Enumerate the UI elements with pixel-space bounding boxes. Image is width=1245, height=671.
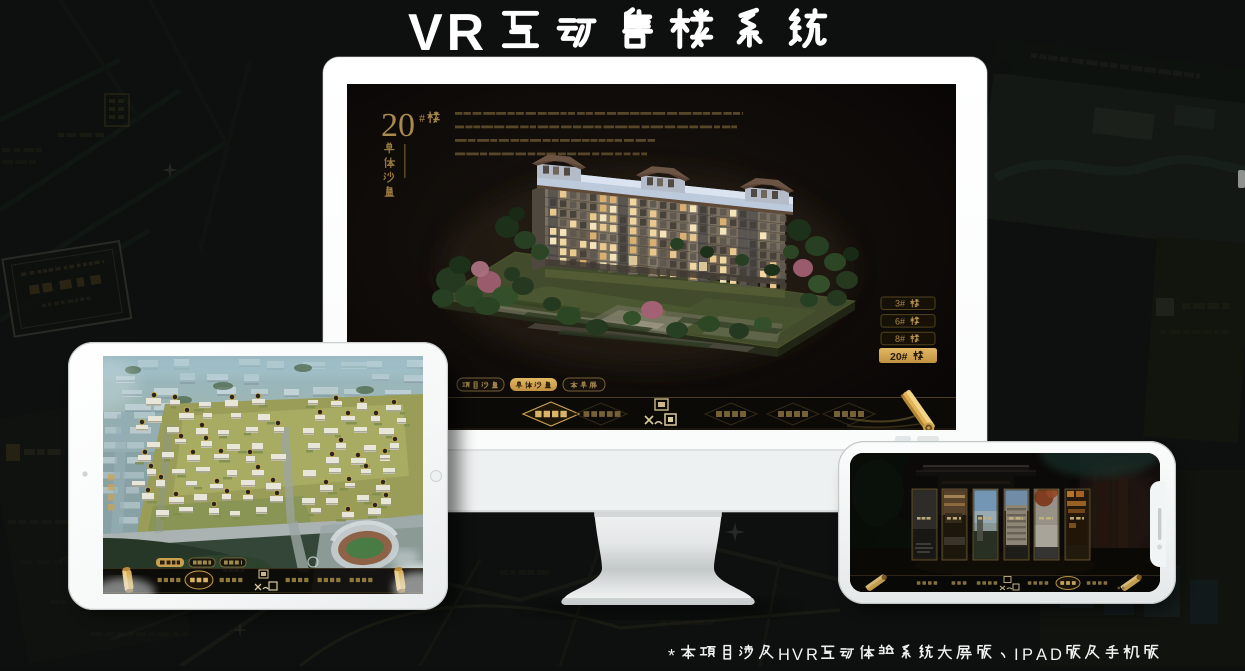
svg-text:VR: VR [408, 4, 488, 62]
svg-text:P: P [1022, 646, 1033, 664]
svg-text:20: 20 [381, 107, 415, 144]
svg-text:I: I [1014, 646, 1019, 664]
svg-text:#: # [419, 111, 425, 125]
svg-text:A: A [1036, 646, 1047, 664]
svg-text:20#: 20# [890, 351, 908, 363]
svg-text:R: R [806, 646, 818, 664]
svg-text:8#: 8# [895, 334, 905, 344]
svg-text:6#: 6# [895, 316, 905, 326]
svg-text:3#: 3# [895, 299, 905, 309]
svg-text:*: * [668, 646, 675, 666]
svg-text:V: V [792, 646, 803, 664]
svg-text:H: H [778, 646, 790, 664]
svg-text:D: D [1050, 646, 1062, 664]
